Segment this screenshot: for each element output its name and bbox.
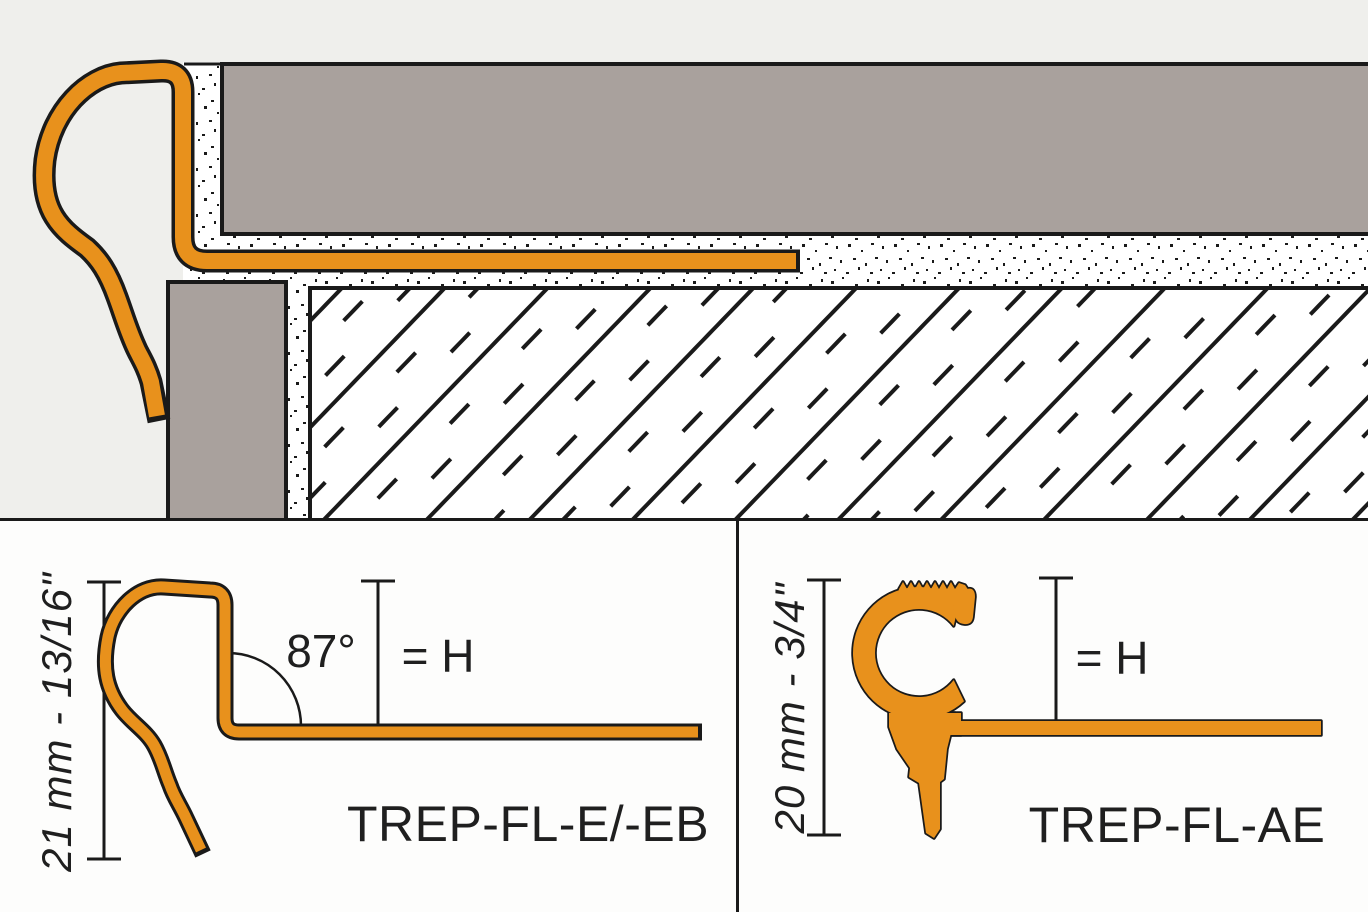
panel-trep-fl-e: 21 mm - 13/16" 87° = H TREP-FL-E/-EB [0, 521, 739, 912]
installation-cross-section [0, 0, 1368, 518]
dimension-label: 21 mm - 13/16" [36, 572, 78, 872]
substrate-hatch [310, 286, 1368, 518]
trep-fl-ae-drawing [739, 521, 1368, 912]
angle-label: 87° [286, 628, 356, 674]
dimension-label: 20 mm - 3/4" [769, 583, 811, 834]
mortar-joint-vertical [190, 66, 222, 242]
tread-tile [222, 64, 1368, 234]
mortar-joint-riser [286, 284, 310, 518]
trep-fl-technical-diagram: 21 mm - 13/16" 87° = H TREP-FL-E/-EB [0, 0, 1368, 912]
product-name: TREP-FL-AE [1029, 800, 1326, 850]
height-reference-line [1039, 578, 1073, 721]
height-label: = H [1076, 635, 1149, 681]
riser-tile [168, 282, 286, 518]
product-name: TREP-FL-E/-EB [347, 799, 709, 849]
height-label: = H [402, 633, 475, 679]
panel-trep-fl-ae: 20 mm - 3/4" = H TREP-FL-AE [739, 521, 1368, 912]
cross-section-drawing [0, 0, 1368, 518]
profile-detail-panels: 21 mm - 13/16" 87° = H TREP-FL-E/-EB [0, 518, 1368, 912]
trep-fl-e-drawing [0, 521, 736, 912]
height-reference-line [361, 581, 395, 726]
